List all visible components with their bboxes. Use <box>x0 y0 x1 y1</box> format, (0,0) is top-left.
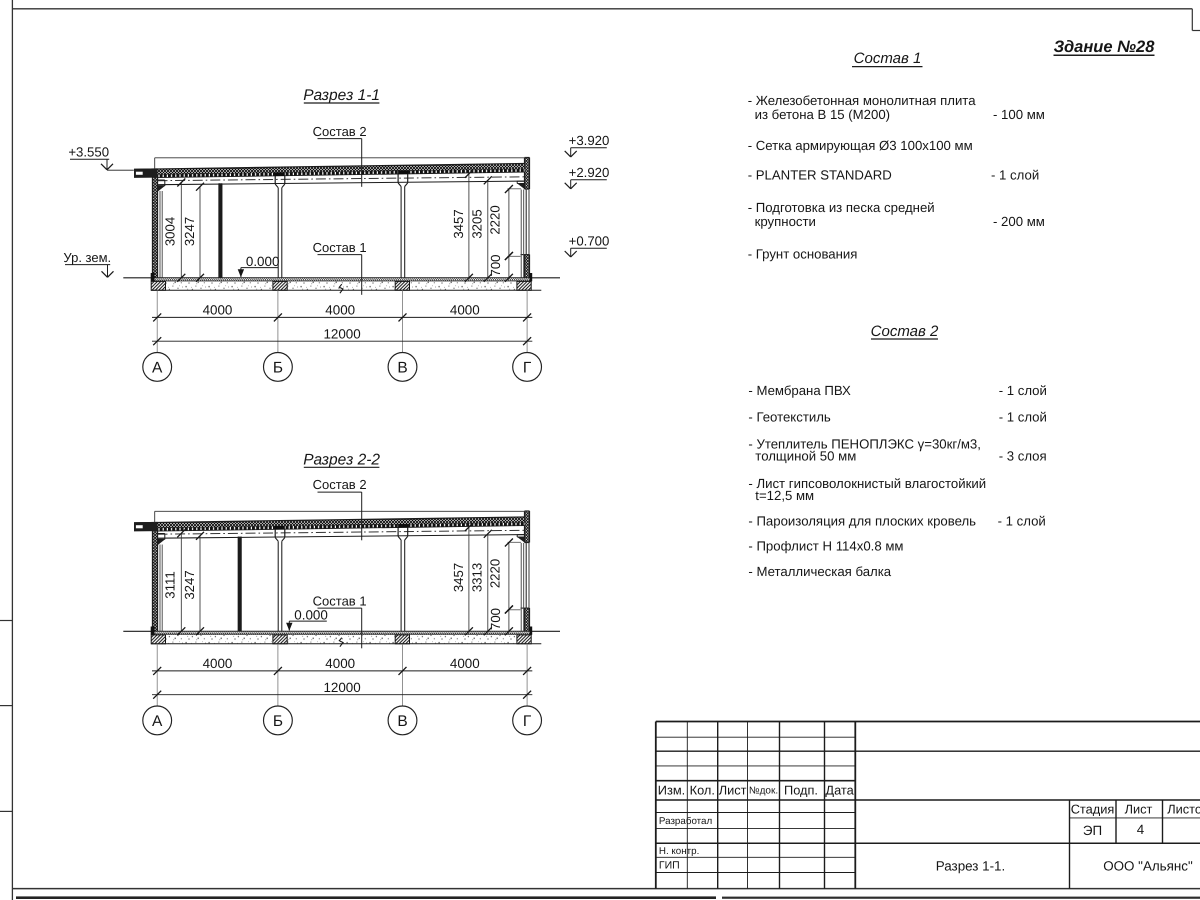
svg-text:Состав 2: Состав 2 <box>313 124 367 139</box>
svg-text:4000: 4000 <box>325 656 355 671</box>
svg-text:0.000: 0.000 <box>246 254 280 269</box>
svg-text:4: 4 <box>1137 822 1145 837</box>
svg-text:крупности: крупности <box>755 214 816 229</box>
svg-text:Лист: Лист <box>1125 802 1153 817</box>
svg-text:Разрез 1-1: Разрез 1-1 <box>303 87 380 104</box>
svg-text:Стадия: Стадия <box>1071 802 1115 817</box>
svg-text:А: А <box>152 359 163 376</box>
svg-text:- Металлическая балка: - Металлическая балка <box>748 564 891 579</box>
svg-text:Разработал: Разработал <box>659 816 713 827</box>
svg-text:В: В <box>397 359 407 376</box>
svg-text:700: 700 <box>488 608 503 630</box>
svg-text:3247: 3247 <box>182 217 197 246</box>
svg-text:+3.920: +3.920 <box>569 133 610 148</box>
svg-text:- Сетка армирующая Ø3 100х100: - Сетка армирующая Ø3 100х100 мм <box>748 138 973 153</box>
svg-text:из бетона В 15 (М200): из бетона В 15 (М200) <box>755 107 890 122</box>
svg-text:3205: 3205 <box>470 209 485 238</box>
svg-text:Б: Б <box>273 359 283 376</box>
svg-text:А: А <box>152 713 163 730</box>
svg-text:толщиной 50 мм: толщиной 50 мм <box>755 448 856 463</box>
svg-text:- Железобетонная монолитная п: - Железобетонная монолитная плита <box>748 93 977 108</box>
svg-text:3457: 3457 <box>451 563 466 592</box>
svg-text:12000: 12000 <box>323 680 360 695</box>
svg-text:Состав 1: Состав 1 <box>313 240 367 255</box>
svg-text:3247: 3247 <box>182 570 197 599</box>
svg-text:В: В <box>397 713 407 730</box>
svg-text:700: 700 <box>488 254 503 276</box>
svg-text:- 1 слой: - 1 слой <box>998 514 1046 529</box>
svg-text:Состав 2: Состав 2 <box>871 323 939 340</box>
svg-text:ООО "Альянс": ООО "Альянс" <box>1103 859 1193 874</box>
svg-text:Подп.: Подп. <box>784 783 818 798</box>
svg-text:- 1 слой: - 1 слой <box>999 383 1047 398</box>
svg-text:- Подготовка из песка средней: - Подготовка из песка средней <box>748 200 935 215</box>
svg-text:4000: 4000 <box>450 303 480 318</box>
svg-text:0.000: 0.000 <box>294 608 328 623</box>
svg-text:4000: 4000 <box>203 656 233 671</box>
svg-text:- 3 слоя: - 3 слоя <box>999 448 1047 463</box>
svg-text:Здание №28: Здание №28 <box>1054 38 1156 56</box>
svg-text:- 100 мм: - 100 мм <box>993 107 1045 122</box>
svg-text:- Геотекстиль: - Геотекстиль <box>748 410 831 425</box>
svg-text:3004: 3004 <box>163 217 178 246</box>
svg-text:Кол.: Кол. <box>690 783 715 798</box>
svg-text:ЭП: ЭП <box>1083 823 1102 838</box>
svg-text:Состав 1: Состав 1 <box>313 594 367 609</box>
svg-text:Ур. зем.: Ур. зем. <box>63 250 111 265</box>
svg-text:Лист: Лист <box>719 783 747 798</box>
svg-text:3313: 3313 <box>470 563 485 592</box>
svg-text:12000: 12000 <box>323 326 360 341</box>
svg-text:3111: 3111 <box>163 571 178 598</box>
svg-text:Г: Г <box>523 713 532 730</box>
svg-text:2220: 2220 <box>488 205 503 234</box>
svg-text:Разрез 2-2: Разрез 2-2 <box>303 452 380 469</box>
svg-text:t=12,5 мм: t=12,5 мм <box>755 488 814 503</box>
svg-text:Б: Б <box>273 713 283 730</box>
svg-text:- 200 мм: - 200 мм <box>993 214 1045 229</box>
svg-text:+3.550: +3.550 <box>68 145 109 160</box>
svg-text:+0.700: +0.700 <box>569 234 610 249</box>
svg-text:4000: 4000 <box>203 303 233 318</box>
svg-text:Разрез 1-1.: Разрез 1-1. <box>936 859 1005 874</box>
svg-text:- Мембрана ПВХ: - Мембрана ПВХ <box>748 383 851 398</box>
svg-text:4000: 4000 <box>325 303 355 318</box>
svg-text:+2.920: +2.920 <box>569 165 610 180</box>
svg-text:Г: Г <box>523 359 532 376</box>
svg-text:3457: 3457 <box>451 209 466 238</box>
svg-text:ГИП: ГИП <box>659 860 680 872</box>
svg-text:- Профлист Н 114х0.8 мм: - Профлист Н 114х0.8 мм <box>748 539 903 554</box>
svg-text:Дата: Дата <box>825 783 854 798</box>
svg-text:- Грунт основания: - Грунт основания <box>748 247 858 262</box>
svg-text:Состав 1: Состав 1 <box>854 50 922 67</box>
svg-text:Изм.: Изм. <box>658 783 685 798</box>
svg-text:№док.: №док. <box>749 786 778 797</box>
svg-text:- PLANTER STANDARD: - PLANTER STANDARD <box>748 168 892 183</box>
svg-text:Н. контр.: Н. контр. <box>659 846 699 857</box>
svg-text:- Пароизоляция для плоских кро: - Пароизоляция для плоских кровель <box>748 514 976 529</box>
svg-text:Листов: Листов <box>1167 802 1200 817</box>
svg-text:- 1 слой: - 1 слой <box>991 168 1039 183</box>
svg-text:4000: 4000 <box>450 656 480 671</box>
svg-text:2220: 2220 <box>488 559 503 588</box>
svg-text:- 1 слой: - 1 слой <box>999 410 1047 425</box>
svg-text:Состав 2: Состав 2 <box>313 477 367 492</box>
